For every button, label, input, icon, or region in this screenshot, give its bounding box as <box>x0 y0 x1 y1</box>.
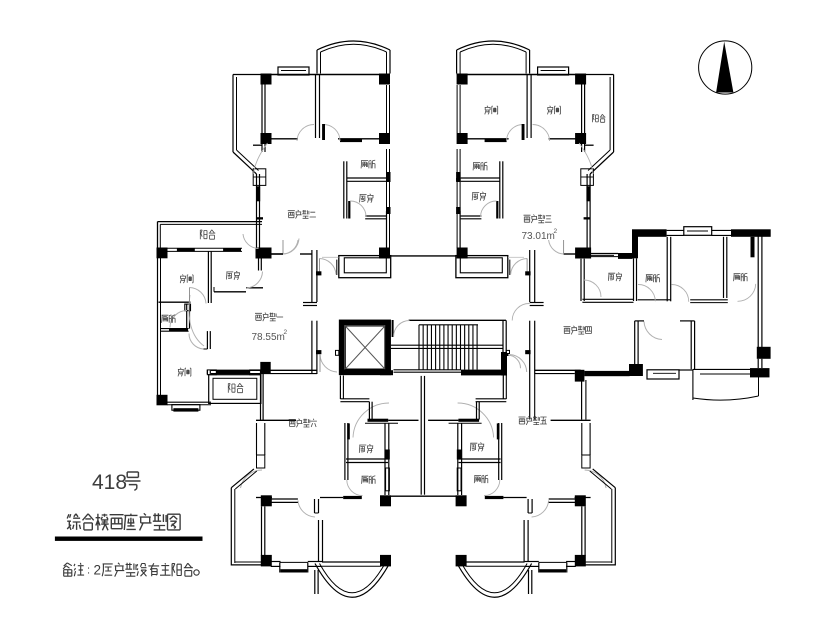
svg-text::: : <box>87 565 90 577</box>
svg-text:78.55m: 78.55m <box>252 332 285 343</box>
svg-text:2: 2 <box>94 563 102 578</box>
svg-text:2: 2 <box>284 329 288 336</box>
svg-text:73.01m: 73.01m <box>522 231 555 242</box>
svg-text:2: 2 <box>554 228 558 235</box>
svg-text:418: 418 <box>92 471 127 494</box>
